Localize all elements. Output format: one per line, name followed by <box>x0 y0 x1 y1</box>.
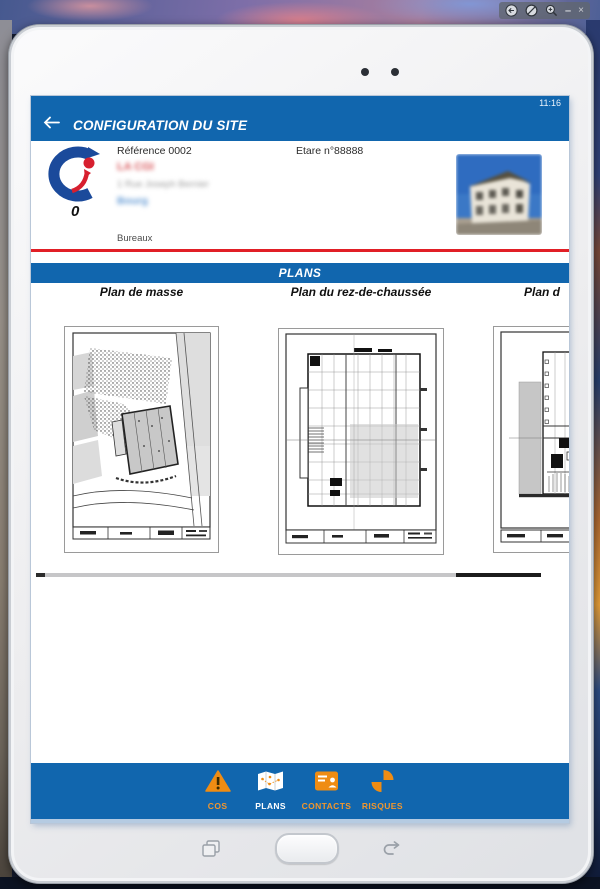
plan-thumbnail-ground-floor[interactable] <box>278 328 444 555</box>
plans-carousel <box>31 326 569 556</box>
scrollbar-thumb[interactable] <box>456 573 541 577</box>
nav-item-cos[interactable]: COS <box>196 769 240 811</box>
nav-item-risques[interactable]: RISQUES <box>360 769 404 811</box>
scrollbar-start-mark <box>36 573 45 577</box>
recents-icon[interactable] <box>201 840 221 864</box>
plan-title: Plan de masse <box>64 285 219 299</box>
warning-triangle-icon <box>205 769 231 798</box>
remote-view-toolbar: – × <box>499 2 590 19</box>
status-bar: 11:16 <box>31 96 569 111</box>
nav-label: COS <box>208 801 228 811</box>
plan-title: Plan d <box>524 285 560 299</box>
nav-label: RISQUES <box>362 801 403 811</box>
plan-title: Plan du rez-de-chaussée <box>278 285 444 299</box>
contact-card-icon <box>314 769 339 798</box>
reference-label: Référence 0002 <box>117 145 192 157</box>
tablet-device: 11:16 CONFIGURATION DU SITE 0 Référence … <box>8 24 594 884</box>
light-sensor-dot <box>391 68 399 76</box>
site-address-blurred: 1 Rue Joseph Bernier <box>117 179 209 190</box>
plan-thumbnail-upper-floor[interactable] <box>493 326 569 553</box>
back-circle-icon[interactable] <box>505 4 518 17</box>
map-icon <box>257 769 284 798</box>
back-arrow-icon[interactable] <box>43 116 60 134</box>
site-name-blurred: LA CGI <box>117 161 154 173</box>
site-city-blurred: Bourg <box>117 195 148 207</box>
logo-number: 0 <box>71 203 79 220</box>
screen-bottom-edge <box>31 819 569 823</box>
app-header: 11:16 CONFIGURATION DU SITE <box>31 96 569 141</box>
plans-banner: PLANS <box>31 263 569 283</box>
bottom-navigation: COS PLANS <box>31 763 569 819</box>
plan-thumbnail-site-plan[interactable] <box>64 326 219 553</box>
company-logo-icon <box>44 145 104 208</box>
minimize-icon[interactable]: – <box>565 6 571 16</box>
nav-label: CONTACTS <box>302 801 352 811</box>
home-button[interactable] <box>275 833 339 864</box>
nav-label: PLANS <box>255 801 286 811</box>
status-time: 11:16 <box>539 98 561 108</box>
nav-item-contacts[interactable]: CONTACTS <box>302 769 352 811</box>
nav-item-plans[interactable]: PLANS <box>249 769 293 811</box>
front-camera-dot <box>361 68 369 76</box>
page-title: CONFIGURATION DU SITE <box>73 118 247 133</box>
risk-quadrants-icon <box>370 769 395 798</box>
plan-titles-row: Plan de masse Plan du rez-de-chaussée Pl… <box>31 285 569 307</box>
close-icon[interactable]: × <box>578 6 584 16</box>
etare-label: Etare n°88888 <box>296 145 363 157</box>
title-bar: CONFIGURATION DU SITE <box>31 111 569 139</box>
red-divider <box>31 249 569 252</box>
zoom-in-icon[interactable] <box>545 4 558 17</box>
tablet-screen: 11:16 CONFIGURATION DU SITE 0 Référence … <box>31 96 569 823</box>
back-hardware-icon[interactable] <box>381 841 403 862</box>
building-photo <box>456 154 542 235</box>
site-info-card: 0 Référence 0002 Etare n°88888 LA CGI 1 … <box>31 141 569 249</box>
block-icon[interactable] <box>525 4 538 17</box>
plans-scrollbar[interactable] <box>36 573 541 577</box>
site-type-label: Bureaux <box>117 233 152 244</box>
